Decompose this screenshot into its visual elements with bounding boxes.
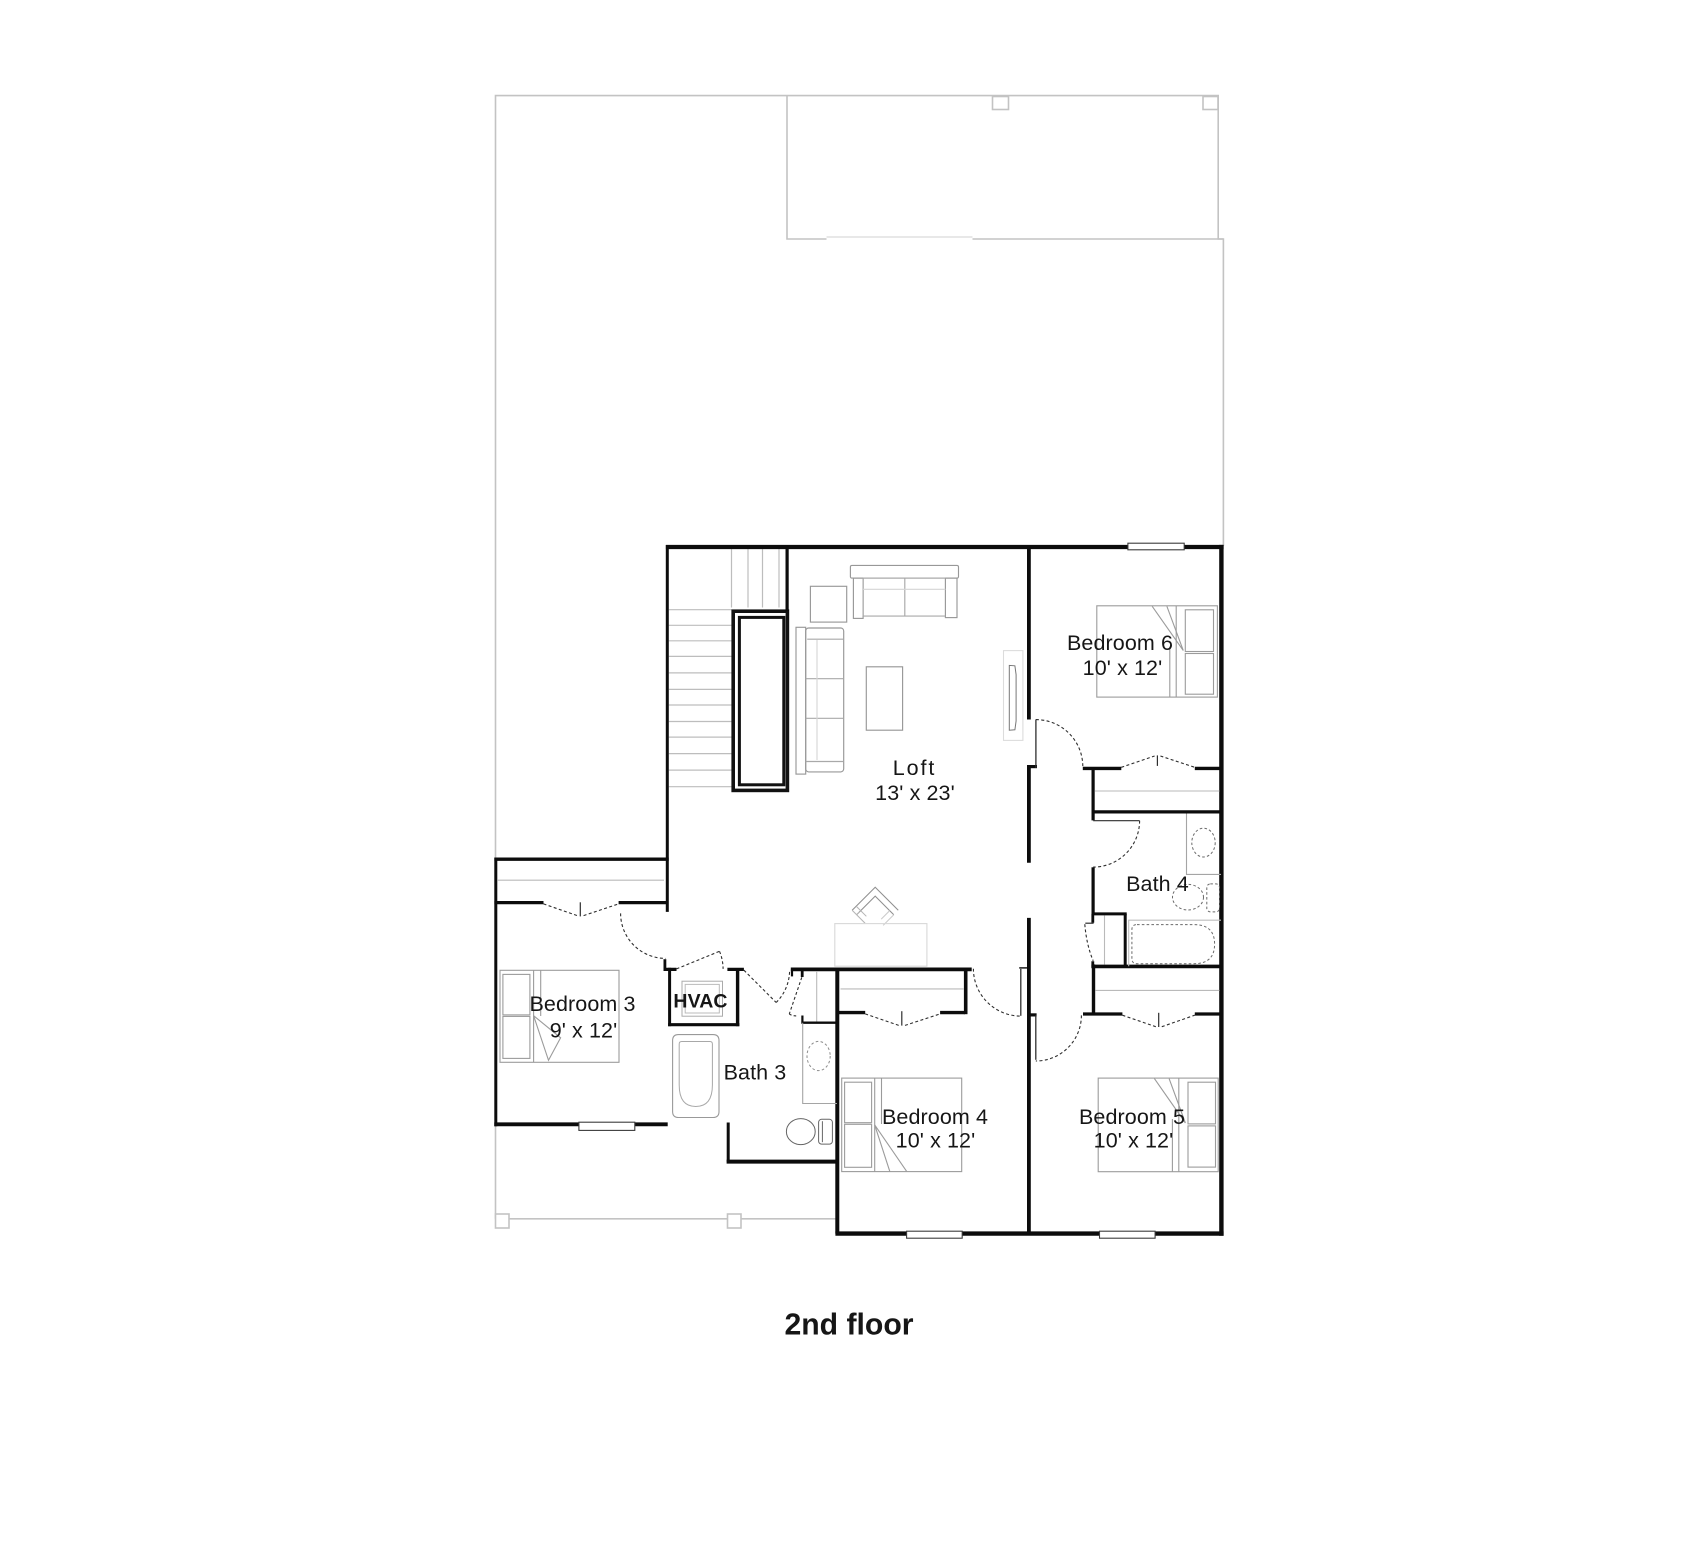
svg-text:HVAC: HVAC	[673, 991, 727, 1013]
svg-text:Bedroom 6: Bedroom 6	[1067, 631, 1173, 655]
svg-text:Bath 4: Bath 4	[1126, 872, 1189, 896]
svg-text:13' x 23': 13' x 23'	[875, 781, 955, 805]
svg-text:Loft: Loft	[893, 756, 936, 780]
svg-text:10' x 12': 10' x 12'	[1083, 656, 1163, 680]
svg-text:Bedroom 5: Bedroom 5	[1079, 1105, 1185, 1129]
svg-text:Bedroom 3: Bedroom 3	[529, 992, 635, 1016]
svg-text:10' x 12': 10' x 12'	[1094, 1128, 1174, 1152]
svg-text:9' x 12': 9' x 12'	[550, 1019, 618, 1043]
svg-text:2nd floor: 2nd floor	[784, 1309, 913, 1342]
svg-text:10' x 12': 10' x 12'	[896, 1128, 976, 1152]
svg-text:Bedroom 4: Bedroom 4	[882, 1105, 988, 1129]
svg-text:Bath 3: Bath 3	[724, 1061, 787, 1085]
